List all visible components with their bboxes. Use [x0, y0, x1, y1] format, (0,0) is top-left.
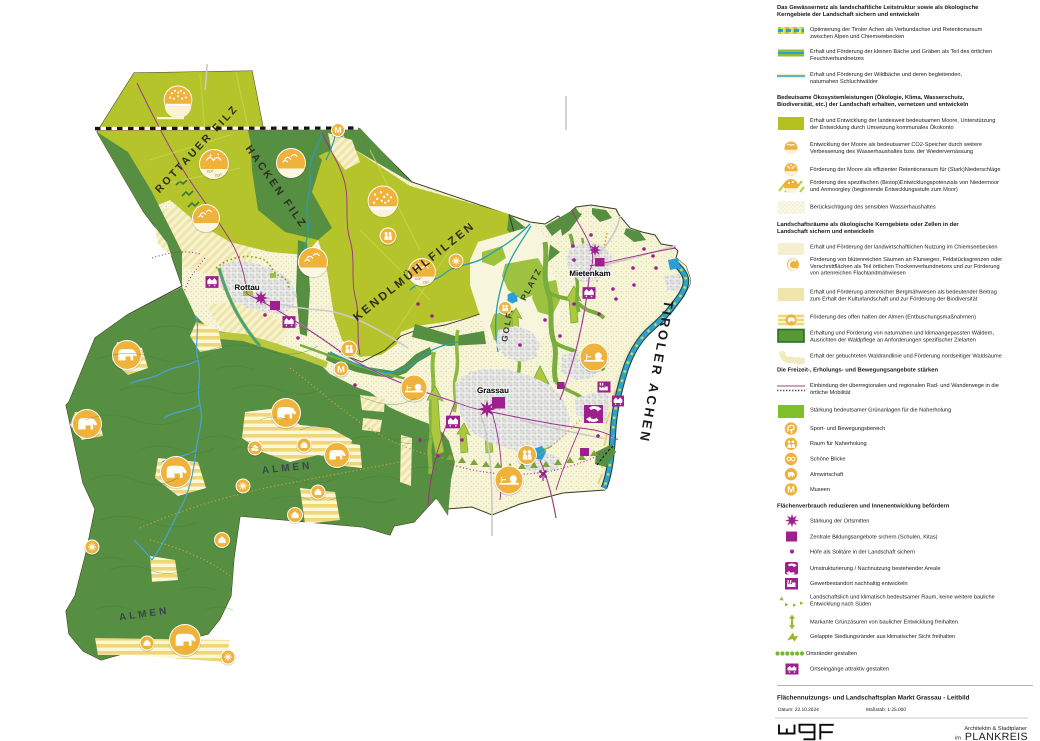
svg-text:Ortsränder gestalten: Ortsränder gestalten [806, 650, 857, 657]
svg-text:Almwirtschaft: Almwirtschaft [810, 471, 844, 478]
svg-text:Raum für Naherholung: Raum für Naherholung [810, 440, 867, 447]
svg-text:von artenreichen Flachlandmähw: von artenreichen Flachlandmähwiesen [810, 270, 906, 277]
svg-text:co²: co² [207, 169, 214, 175]
svg-text:Entwicklung nach Süden: Entwicklung nach Süden [810, 600, 871, 607]
svg-text:Sport- und Bewegungsbereich: Sport- und Bewegungsbereich [810, 425, 885, 432]
svg-text:zum Erhalt der Kulturlandschaf: zum Erhalt der Kulturlandschaft und zur … [810, 295, 978, 302]
svg-text:Erhalt und Förderung der landw: Erhalt und Förderung der landwirtschaftl… [810, 244, 998, 251]
svg-text:Flächenverbrauch reduzieren un: Flächenverbrauch reduzieren und Innenent… [777, 503, 950, 510]
svg-text:Erhalt der gebuchteten Waldran: Erhalt der gebuchteten Waldrandlinie und… [810, 353, 1002, 360]
svg-text:Gelappte Siedlungsränder aus k: Gelappte Siedlungsränder aus klimatische… [810, 633, 955, 640]
svg-text:Landschaft sichern und entwick: Landschaft sichern und entwickeln [777, 228, 874, 235]
svg-text:M: M [787, 484, 795, 494]
svg-text:Einbindung der überregionalen: Einbindung der überregionalen und region… [810, 382, 999, 389]
svg-text:Kerngebiete der Landschaft sic: Kerngebiete der Landschaft sichern und e… [777, 11, 920, 18]
svg-text:Bedeutsame Ökosystemleistungen: Bedeutsame Ökosystemleistungen (Ökologie… [777, 94, 965, 101]
svg-text:Ortseingänge attraktiv gestalt: Ortseingänge attraktiv gestalten [810, 666, 889, 673]
svg-text:Gewerbestandort nachhaltig ent: Gewerbestandort nachhaltig entwickeln [810, 580, 908, 587]
svg-text:Die Freizeit-, Erholungs- und: Die Freizeit-, Erholungs- und Bewegungsa… [777, 367, 939, 374]
svg-text:Landschaftsräume als ökologisc: Landschaftsräume als ökologische Kerngeb… [777, 221, 959, 228]
svg-text:und Anmoorgley (beginnende Ent: und Anmoorgley (beginnende Entwicklungss… [810, 186, 958, 193]
svg-text:der Entwicklung durch Umsetzun: der Entwicklung durch Umsetzung kommunal… [810, 124, 954, 131]
svg-text:Flächennutzungs- und Landschaf: Flächennutzungs- und Landschaftsplan Mar… [777, 695, 970, 702]
svg-text:Förderung von blütenreichen Sä: Förderung von blütenreichen Säumen an Fl… [810, 256, 1002, 263]
svg-text:Erhalt und Entwicklung der lan: Erhalt und Entwicklung der landesweit be… [810, 117, 995, 124]
svg-text:Stärkung bedeutsamer Grünanlag: Stärkung bedeutsamer Grünanlagen für die… [810, 407, 951, 414]
svg-text:Schöne Blicke: Schöne Blicke [810, 456, 845, 463]
svg-text:PLANKREIS: PLANKREIS [965, 731, 1028, 741]
svg-text:Das Gewässernetz als landschaf: Das Gewässernetz als landschaftliche Lei… [777, 4, 979, 11]
svg-text:Landschaftslich und klimatisch: Landschaftslich und klimatisch bedeutsam… [810, 594, 995, 601]
svg-text:Maßstab: 1:25.000: Maßstab: 1:25.000 [866, 707, 906, 713]
svg-text:Museen: Museen [810, 487, 830, 493]
svg-text:co²: co² [215, 173, 222, 179]
svg-text:Entwicklung der Moore als bede: Entwicklung der Moore als bedeutsamer CO… [810, 141, 982, 148]
svg-text:Förderung der Moore als effizi: Förderung der Moore als effizienter Rete… [810, 166, 1000, 173]
svg-text:örtliche Mobilität: örtliche Mobilität [810, 389, 851, 396]
svg-text:Grassau: Grassau [477, 386, 509, 395]
svg-text:Stärkung der Ortsmitten: Stärkung der Ortsmitten [810, 518, 869, 525]
svg-text:Berücksichtigung des sensiblen: Berücksichtigung des sensiblen Wasserhau… [810, 204, 936, 211]
svg-text:M: M [334, 125, 341, 135]
svg-text:Höfe als Solitäre in der Lands: Höfe als Solitäre in der Landschaft sich… [810, 549, 915, 556]
svg-text:Ausrichten der Waldpflege an A: Ausrichten der Waldpflege an Anforderung… [810, 336, 976, 343]
svg-text:Verbesserung des Wasserhaushal: Verbesserung des Wasserhaushaltes bzw. d… [810, 148, 973, 155]
svg-text:Zentrale Bildungsangebote sich: Zentrale Bildungsangebote sichern (Schul… [810, 534, 938, 541]
svg-text:Datum: 22.10.2024: Datum: 22.10.2024 [778, 707, 819, 713]
svg-text:Rottau: Rottau [234, 283, 259, 292]
svg-text:Erhalt und Förderung der klein: Erhalt und Förderung der kleinen Bäche u… [810, 48, 992, 55]
svg-text:naturnahen Schluchtwälder: naturnahen Schluchtwälder [810, 78, 878, 85]
svg-text:Erhalt und Förderung artenreic: Erhalt und Förderung artenreicher Bergmä… [810, 289, 997, 296]
svg-text:Erhaltung und Förderung von na: Erhaltung und Förderung von naturnahen u… [810, 330, 995, 337]
svg-text:Erhalt und Förderung der Wildb: Erhalt und Förderung der Wildbäche und d… [810, 71, 963, 78]
svg-text:Umstrukturierung / Nachnutzung: Umstrukturierung / Nachnutzung bestehend… [810, 565, 941, 572]
svg-text:zwischen Alpen und Chiemseebec: zwischen Alpen und Chiemseebecken [810, 33, 904, 40]
svg-text:Mietenkam: Mietenkam [569, 269, 610, 278]
svg-text:Biodiversität, etc.) der Lands: Biodiversität, etc.) der Landschaft erha… [777, 101, 969, 108]
svg-text:Verschnittflächen als Teil ört: Verschnittflächen als Teil örtlichen Tro… [810, 263, 1000, 270]
svg-text:im: im [955, 735, 961, 741]
svg-text:Feuchtverbundnetzes: Feuchtverbundnetzes [810, 55, 864, 62]
svg-text:co²: co² [423, 280, 430, 285]
svg-text:Förderung des spezifischen (Bi: Förderung des spezifischen (Biotop)Entwi… [810, 179, 999, 186]
svg-text:M: M [337, 363, 345, 374]
svg-text:Markante Grünzäsuren von bauli: Markante Grünzäsuren von baulicher Entwi… [810, 619, 958, 626]
svg-text:Förderung des offen halten der: Förderung des offen halten der Almen (En… [810, 314, 976, 321]
svg-text:Optimierung der Tiroler Achen: Optimierung der Tiroler Achen als Verbun… [810, 26, 983, 33]
